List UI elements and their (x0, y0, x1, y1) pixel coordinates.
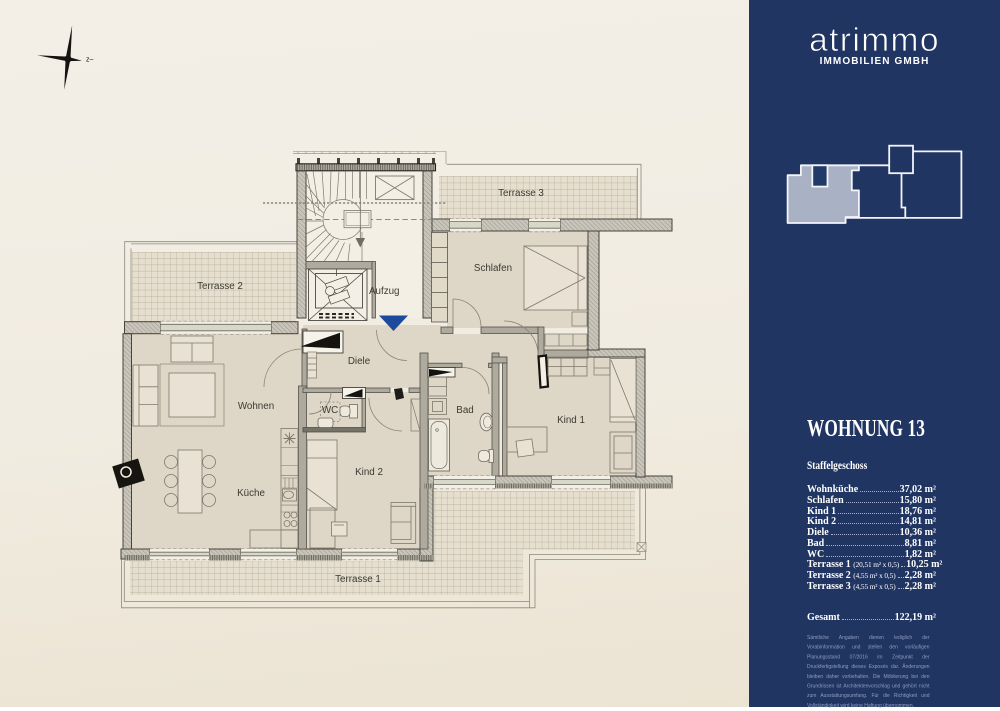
svg-text:Bad: Bad (456, 405, 473, 416)
svg-text:Kind 1: Kind 1 (557, 415, 585, 426)
svg-text:WC: WC (322, 405, 338, 416)
svg-text:Terrasse 1: Terrasse 1 (335, 574, 381, 585)
svg-text:Schlafen: Schlafen (474, 263, 512, 274)
svg-text:Aufzug: Aufzug (369, 286, 400, 297)
svg-text:Diele: Diele (348, 356, 371, 367)
svg-text:z–: z– (86, 57, 94, 64)
svg-text:Küche: Küche (237, 488, 265, 499)
svg-text:Terrasse 3: Terrasse 3 (498, 188, 544, 199)
svg-text:Terrasse 2: Terrasse 2 (197, 281, 243, 292)
svg-text:Kind 2: Kind 2 (355, 467, 383, 478)
svg-text:Wohnen: Wohnen (238, 401, 274, 412)
